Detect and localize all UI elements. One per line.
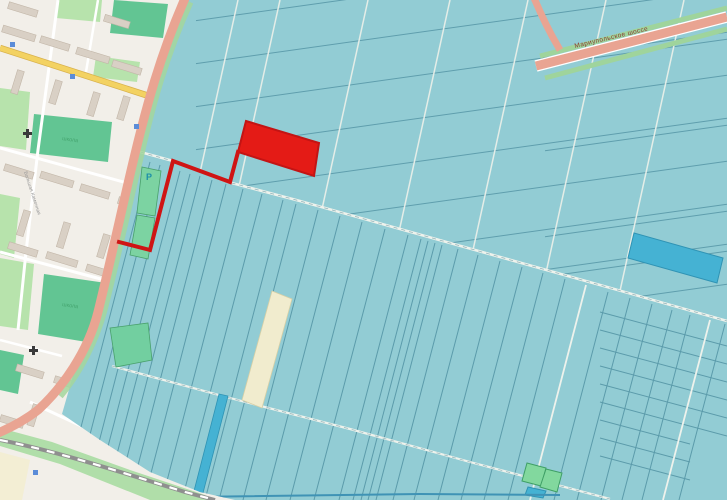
poi-icon[interactable] (134, 124, 139, 129)
parking-icon[interactable]: Р (146, 172, 152, 182)
poi-icon[interactable] (10, 42, 15, 47)
poi-icon[interactable] (70, 74, 75, 79)
poi-icon[interactable] (33, 470, 38, 475)
map-svg: Р Мариупольское шоссе Большая Каменная ш… (0, 0, 727, 500)
map-canvas[interactable]: Р Мариупольское шоссе Большая Каменная ш… (0, 0, 727, 500)
